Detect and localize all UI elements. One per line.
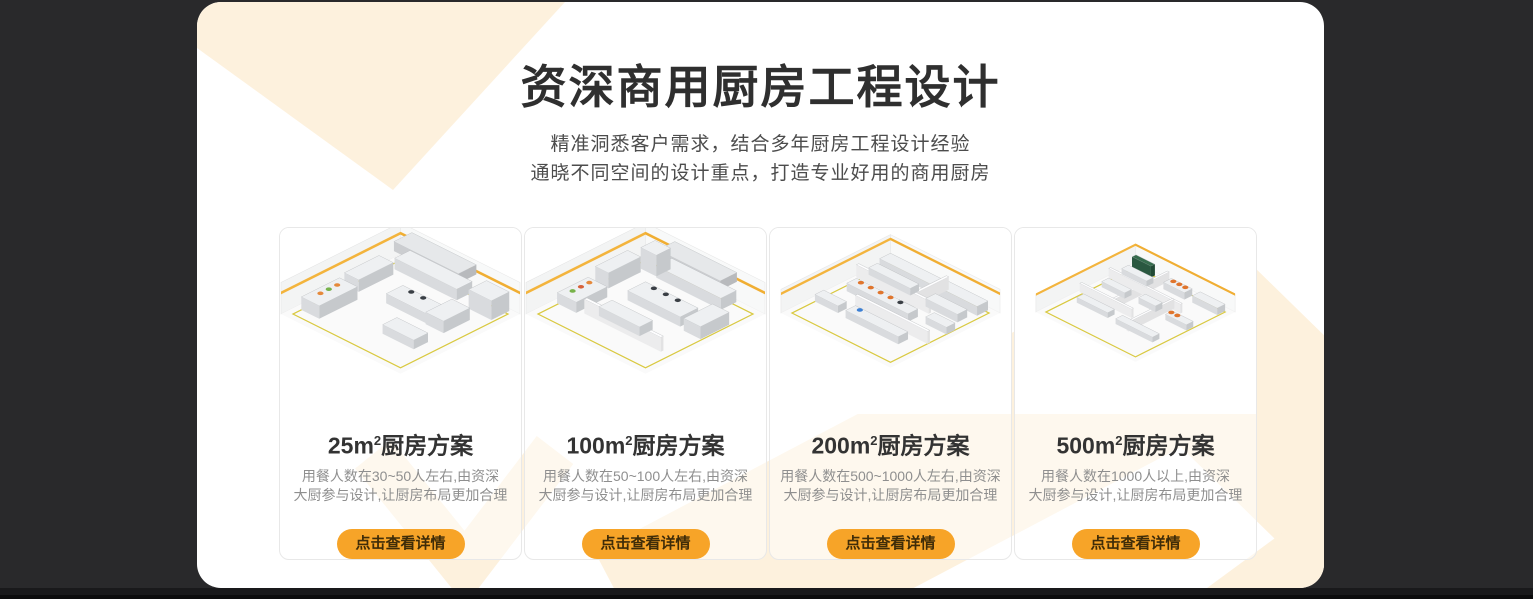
kitchen-render-500m2 [1015, 228, 1256, 414]
card-description: 用餐人数在30~50人左右,由资深 大厨参与设计,让厨房布局更加合理 [280, 467, 521, 505]
card-area-sup: 2 [625, 433, 632, 448]
card-desc-line2: 大厨参与设计,让厨房布局更加合理 [770, 486, 1011, 505]
content-panel: 资深商用厨房工程设计 精准洞悉客户需求，结合多年厨房工程设计经验 通晓不同空间的… [197, 2, 1324, 588]
kitchen-isometric-image [525, 228, 766, 414]
card-title-suffix: 厨房方案 [381, 433, 473, 459]
plan-card-200m2[interactable]: 200m2厨房方案 用餐人数在500~1000人左右,由资深 大厨参与设计,让厨… [769, 227, 1012, 560]
card-area-sup: 2 [1115, 433, 1122, 448]
card-area-value: 100m [566, 433, 625, 459]
plan-card-500m2[interactable]: 500m2厨房方案 用餐人数在1000人以上,由资深 大厨参与设计,让厨房布局更… [1014, 227, 1257, 560]
card-area-sup: 2 [870, 433, 877, 448]
plan-cards-row: 25m2厨房方案 用餐人数在30~50人左右,由资深 大厨参与设计,让厨房布局更… [279, 227, 1259, 560]
page-subtitle: 精准洞悉客户需求，结合多年厨房工程设计经验 通晓不同空间的设计重点，打造专业好用… [197, 130, 1324, 188]
view-details-button-500m2[interactable]: 点击查看详情 [1072, 529, 1200, 559]
subtitle-line-1: 精准洞悉客户需求，结合多年厨房工程设计经验 [197, 130, 1324, 159]
card-description: 用餐人数在1000人以上,由资深 大厨参与设计,让厨房布局更加合理 [1015, 467, 1256, 505]
view-details-button-200m2[interactable]: 点击查看详情 [827, 529, 955, 559]
view-details-button-25m2[interactable]: 点击查看详情 [337, 529, 465, 559]
card-title-suffix: 厨房方案 [878, 433, 970, 459]
card-title: 200m2厨房方案 [770, 427, 1011, 460]
card-area-value: 200m [811, 433, 870, 459]
card-description: 用餐人数在50~100人左右,由资深 大厨参与设计,让厨房布局更加合理 [525, 467, 766, 505]
card-desc-line1: 用餐人数在50~100人左右,由资深 [525, 467, 766, 486]
card-title-suffix: 厨房方案 [1123, 433, 1215, 459]
card-title: 500m2厨房方案 [1015, 427, 1256, 460]
kitchen-render-25m2 [280, 228, 521, 414]
bottom-dark-strip [0, 588, 1533, 599]
subtitle-line-2: 通晓不同空间的设计重点，打造专业好用的商用厨房 [197, 159, 1324, 188]
plan-card-25m2[interactable]: 25m2厨房方案 用餐人数在30~50人左右,由资深 大厨参与设计,让厨房布局更… [279, 227, 522, 560]
card-desc-line1: 用餐人数在1000人以上,由资深 [1015, 467, 1256, 486]
section-header: 资深商用厨房工程设计 精准洞悉客户需求，结合多年厨房工程设计经验 通晓不同空间的… [197, 2, 1324, 188]
card-title: 100m2厨房方案 [525, 427, 766, 460]
card-desc-line1: 用餐人数在500~1000人左右,由资深 [770, 467, 1011, 486]
page-background: { "colors": { "dark_background": "#29292… [0, 0, 1533, 599]
card-desc-line2: 大厨参与设计,让厨房布局更加合理 [1015, 486, 1256, 505]
kitchen-isometric-image [1015, 228, 1256, 414]
kitchen-render-200m2 [770, 228, 1011, 414]
card-area-value: 500m [1056, 433, 1115, 459]
card-desc-line2: 大厨参与设计,让厨房布局更加合理 [280, 486, 521, 505]
card-title: 25m2厨房方案 [280, 427, 521, 460]
kitchen-isometric-image [280, 228, 521, 414]
card-title-suffix: 厨房方案 [633, 433, 725, 459]
card-desc-line2: 大厨参与设计,让厨房布局更加合理 [525, 486, 766, 505]
kitchen-isometric-image [770, 228, 1011, 414]
card-desc-line1: 用餐人数在30~50人左右,由资深 [280, 467, 521, 486]
kitchen-render-100m2 [525, 228, 766, 414]
plan-card-100m2[interactable]: 100m2厨房方案 用餐人数在50~100人左右,由资深 大厨参与设计,让厨房布… [524, 227, 767, 560]
card-description: 用餐人数在500~1000人左右,由资深 大厨参与设计,让厨房布局更加合理 [770, 467, 1011, 505]
card-area-value: 25m [328, 433, 374, 459]
view-details-button-100m2[interactable]: 点击查看详情 [582, 529, 710, 559]
page-title: 资深商用厨房工程设计 [197, 60, 1324, 114]
